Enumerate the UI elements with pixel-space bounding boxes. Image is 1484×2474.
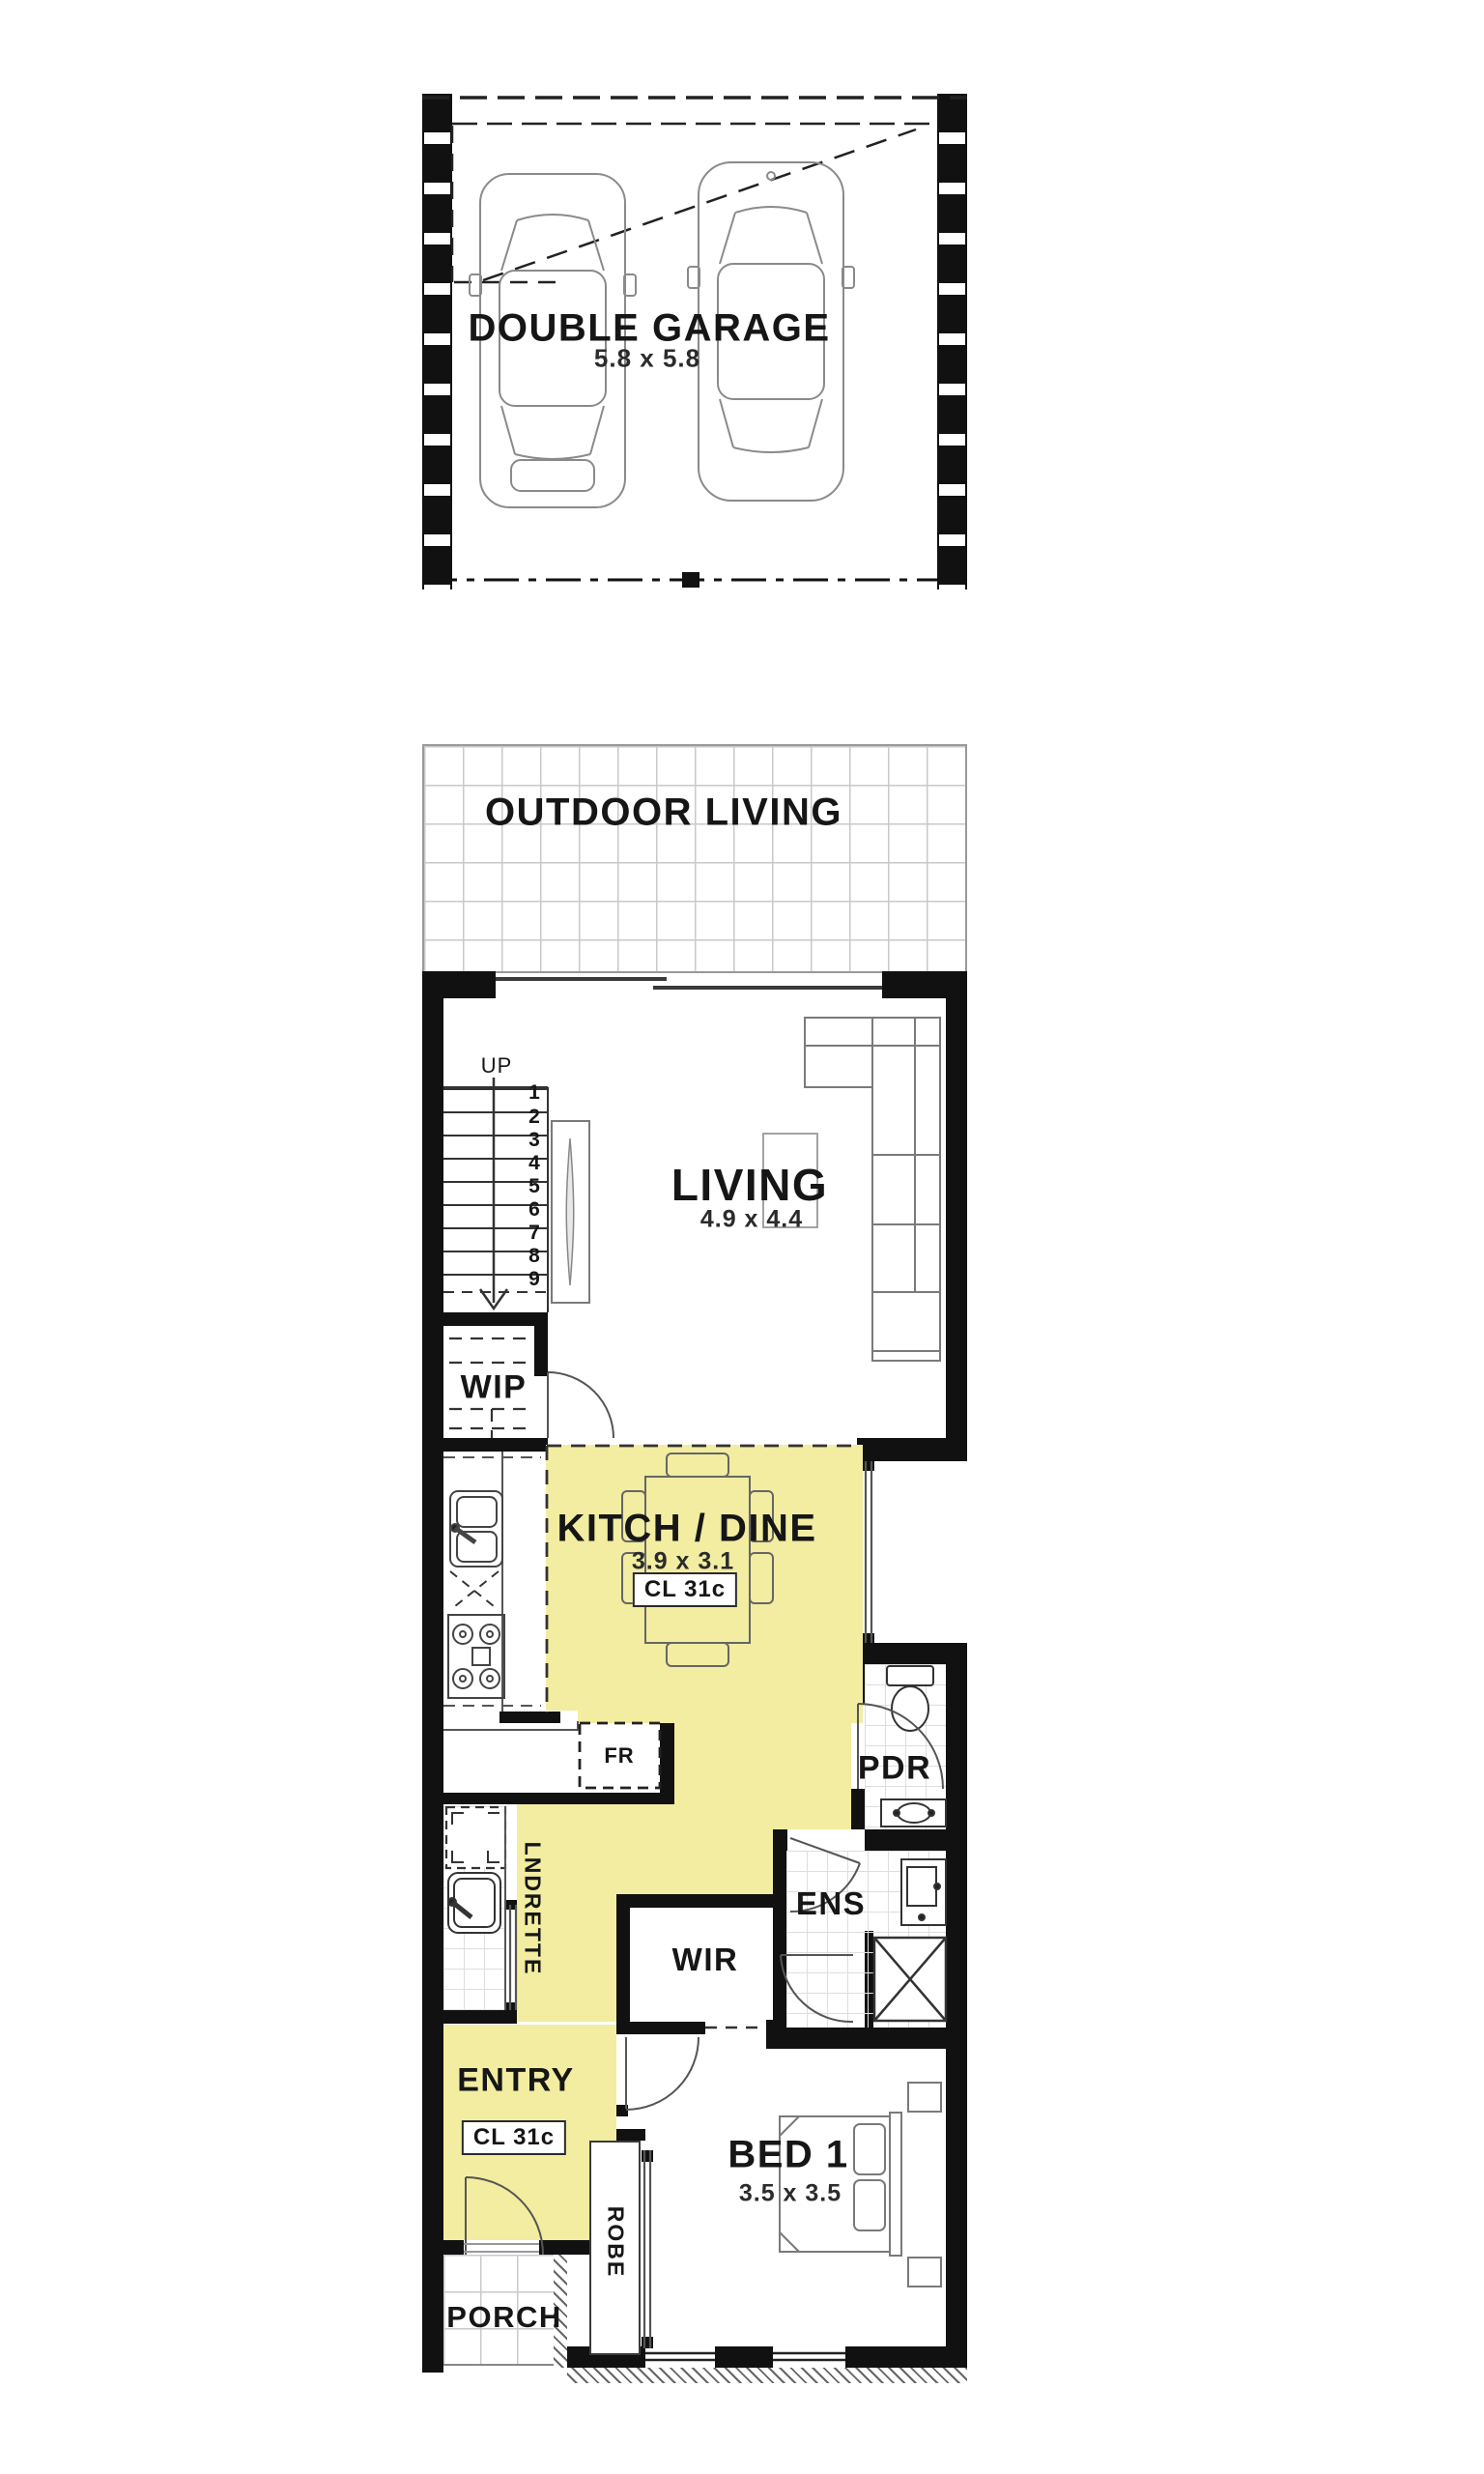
entry-ceiling-tag: CL 31c	[462, 2120, 566, 2155]
garage-door-dashes	[422, 98, 967, 282]
garage-wall-left	[422, 94, 452, 590]
west-wall	[422, 971, 443, 2373]
kitchen-sink-icon	[450, 1491, 502, 1567]
stair-tread-number: 5	[528, 1175, 540, 1198]
wir-south-wall	[616, 2022, 705, 2034]
porch-label: PORCH	[446, 2300, 561, 2335]
lndrette-south-wall	[422, 2010, 517, 2024]
wip-south-wall	[422, 1438, 548, 1452]
stair-tread-number: 3	[528, 1129, 540, 1152]
kitchen-lndrette-wall	[422, 1793, 674, 1804]
pdr-ens-wall-b	[865, 1829, 967, 1851]
robe-slider-cap-bottom	[642, 2337, 653, 2348]
robe-slider-cap-top	[642, 2150, 653, 2162]
dishwasher-icon	[450, 1571, 499, 1610]
robe-slider	[644, 2150, 650, 2348]
pdr-west-wall-lower	[851, 1789, 865, 1829]
ens-floor-tiles	[786, 1851, 946, 2028]
wir-north-wall	[616, 1894, 786, 1908]
fridge-label: FR	[604, 1743, 634, 1769]
bed1-label: BED 1	[728, 2134, 848, 2177]
pdr-label: PDR	[858, 1750, 931, 1788]
stair-tread-number: 6	[528, 1198, 540, 1222]
ens-west-wall	[773, 1829, 786, 2039]
wip-label: WIP	[461, 1369, 528, 1407]
kitch-dine-label: KITCH / DINE	[556, 1508, 816, 1551]
east-wall-upper	[946, 971, 967, 1461]
stair-tread-number: 7	[528, 1222, 540, 1245]
sliding-door-icon	[496, 979, 882, 988]
wip-door-arc	[548, 1372, 614, 1438]
kitchen-zone-strip	[578, 1711, 863, 1723]
outdoor-living-label: OUTDOOR LIVING	[485, 791, 842, 835]
cooktop-icon	[448, 1615, 504, 1698]
hall-zone	[517, 1804, 773, 1894]
lndrette-slider	[510, 1905, 516, 2010]
bottom-wall-b	[715, 2346, 773, 2368]
bed1-dim: 3.5 x 3.5	[739, 2180, 842, 2208]
pdr-north-wall	[851, 1643, 967, 1664]
stair-tread-number: 2	[528, 1106, 540, 1129]
robe-label: ROBE	[603, 2206, 629, 2278]
bottom-wall-c	[845, 2346, 967, 2368]
lndrette-floor-tiles	[443, 1806, 505, 2010]
east-wall-lower	[946, 1643, 967, 2368]
stairs-up-label: UP	[481, 1053, 513, 1079]
kitch-dine-ceiling-tag: CL 31c	[633, 1572, 737, 1607]
garage-wall-right	[937, 94, 967, 590]
tv-icon	[552, 1121, 589, 1303]
stair-tread-number: 1	[528, 1081, 540, 1105]
ens-label: ENS	[796, 1885, 866, 1922]
living-label: LIVING	[671, 1159, 828, 1211]
lndrette-label: LNDRETTE	[520, 1842, 546, 1976]
garage-centreline-marker	[682, 572, 699, 588]
fridge-stub-wall	[660, 1712, 674, 1804]
wip-east-wall	[534, 1312, 548, 1376]
counter-stub-wall	[499, 1712, 560, 1723]
plan-linework	[0, 0, 1484, 2474]
window-sill-hatch	[567, 2368, 967, 2383]
garage-corner-tr	[937, 94, 967, 132]
stair-bottom-wall	[422, 1312, 548, 1326]
entry-label: ENTRY	[457, 2062, 574, 2100]
pdr-floor-tiles	[865, 1664, 946, 1829]
wir-label: WIR	[672, 1942, 739, 1978]
living-kitchen-cap	[857, 1438, 967, 1461]
stair-tread-number: 8	[528, 1245, 540, 1268]
wir-west-wall	[616, 1894, 630, 2034]
bed1-door-arc	[626, 2037, 699, 2110]
bed-door-cap	[616, 2105, 628, 2116]
entry-door-wall-right	[539, 2240, 589, 2255]
kitchen-east-slider	[866, 1461, 871, 1643]
entry-door-wall-left	[443, 2240, 464, 2255]
garage-corner-tl	[422, 94, 452, 132]
living-dim: 4.9 x 4.4	[700, 1206, 803, 1234]
garage-dim: 5.8 x 5.8	[594, 344, 700, 374]
ens-south-wall	[766, 2028, 967, 2049]
stair-tread-number: 9	[528, 1268, 540, 1291]
floor-plan: DOUBLE GARAGE 5.8 x 5.8 OUTDOOR LIVING U…	[0, 0, 1484, 2474]
stair-tread-number: 4	[528, 1152, 540, 1175]
outdoor-living-floor	[422, 744, 967, 973]
